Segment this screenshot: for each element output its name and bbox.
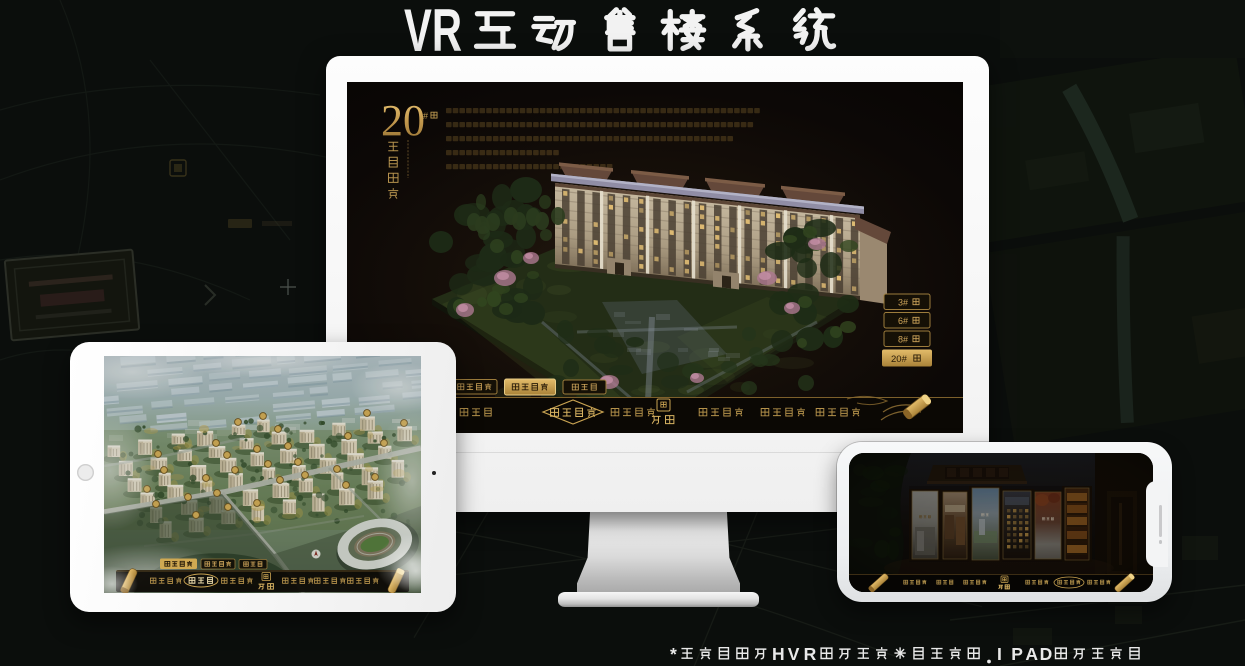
svg-text:P: P bbox=[1011, 644, 1023, 664]
svg-text:20: 20 bbox=[381, 96, 425, 145]
svg-text:6#: 6# bbox=[898, 316, 908, 326]
svg-text:A: A bbox=[1025, 644, 1038, 664]
svg-text:8#: 8# bbox=[898, 335, 908, 345]
svg-text:20#: 20# bbox=[891, 354, 908, 365]
svg-text:R: R bbox=[804, 644, 817, 664]
svg-text:3#: 3# bbox=[898, 298, 908, 308]
svg-text:VR: VR bbox=[404, 2, 462, 58]
svg-text:*: * bbox=[670, 644, 677, 664]
svg-text:V: V bbox=[788, 644, 800, 664]
svg-text:#: # bbox=[423, 111, 428, 121]
svg-text:H: H bbox=[772, 644, 785, 664]
svg-text:D: D bbox=[1040, 644, 1053, 664]
svg-text:I: I bbox=[997, 644, 1002, 664]
